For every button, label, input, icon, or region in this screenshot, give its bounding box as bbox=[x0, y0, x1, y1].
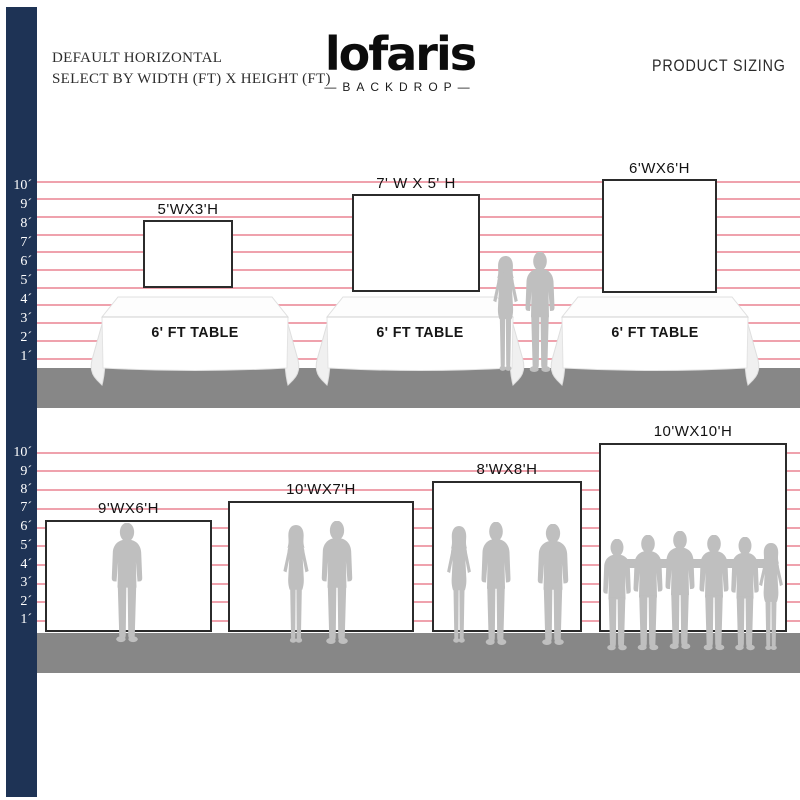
title-line2: SELECT BY WIDTH (FT) X HEIGHT (FT) bbox=[52, 69, 331, 90]
backdrop-6x6-label: 6'WX6'H bbox=[592, 160, 727, 177]
ruler-label: 5´ bbox=[6, 272, 35, 290]
ruler-label: 7´ bbox=[6, 499, 35, 517]
logo-text: lofaris bbox=[300, 30, 500, 78]
backdrop-8x8-label: 8'WX8'H bbox=[432, 461, 582, 478]
ruler-label: 6´ bbox=[6, 253, 35, 271]
ruler-label: 3´ bbox=[6, 310, 35, 328]
ruler-label: 10´ bbox=[6, 177, 35, 195]
logo-subtext: —BACKDROP— bbox=[300, 80, 500, 94]
backdrop-6x6 bbox=[602, 179, 717, 293]
ruler-label: 4´ bbox=[6, 556, 35, 574]
backdrop-10x10-label: 10'WX10'H bbox=[599, 423, 787, 440]
table-3-label: 6' FT TABLE bbox=[555, 324, 755, 341]
ruler-label: 8´ bbox=[6, 481, 35, 499]
backdrop-7x5-label: 7' W X 5' H bbox=[342, 175, 490, 192]
ruler-label: 4´ bbox=[6, 291, 35, 309]
ruler-label: 9´ bbox=[6, 196, 35, 214]
backdrop-9x6-label: 9'WX6'H bbox=[45, 500, 212, 517]
ruler-label: 3´ bbox=[6, 574, 35, 592]
trio-silhouette bbox=[442, 518, 576, 650]
ruler-label: 1´ bbox=[6, 348, 35, 366]
ruler-label: 10´ bbox=[6, 444, 35, 462]
ruler-label: 5´ bbox=[6, 537, 35, 555]
backdrop-5x3 bbox=[143, 220, 233, 288]
product-sizing-infographic: DEFAULT HORIZONTAL SELECT BY WIDTH (FT) … bbox=[0, 0, 800, 800]
ruler-label: 2´ bbox=[6, 593, 35, 611]
ruler-label: 7´ bbox=[6, 234, 35, 252]
backdrop-7x5 bbox=[352, 194, 480, 292]
ruler-label: 8´ bbox=[6, 215, 35, 233]
page-title: DEFAULT HORIZONTAL SELECT BY WIDTH (FT) … bbox=[52, 48, 331, 90]
table-3 bbox=[550, 292, 760, 392]
ruler-bar bbox=[6, 7, 37, 797]
couple-silhouette-top bbox=[488, 252, 568, 376]
backdrop-5x3-label: 5'WX3'H bbox=[128, 201, 248, 218]
ruler-label: 2´ bbox=[6, 329, 35, 347]
table-1 bbox=[90, 292, 300, 392]
ruler-label: 9´ bbox=[6, 463, 35, 481]
man-silhouette bbox=[104, 522, 150, 646]
group-silhouette bbox=[598, 531, 788, 655]
couple-silhouette bbox=[276, 520, 360, 647]
ruler-label: 1´ bbox=[6, 611, 35, 629]
brand-logo: lofaris —BACKDROP— bbox=[300, 30, 500, 94]
table-1-label: 6' FT TABLE bbox=[95, 324, 295, 341]
backdrop-10x7-label: 10'WX7'H bbox=[228, 481, 414, 498]
product-sizing-label: PRODUCT SIZING bbox=[652, 56, 778, 76]
title-line1: DEFAULT HORIZONTAL bbox=[52, 48, 331, 69]
ruler-label: 6´ bbox=[6, 518, 35, 536]
